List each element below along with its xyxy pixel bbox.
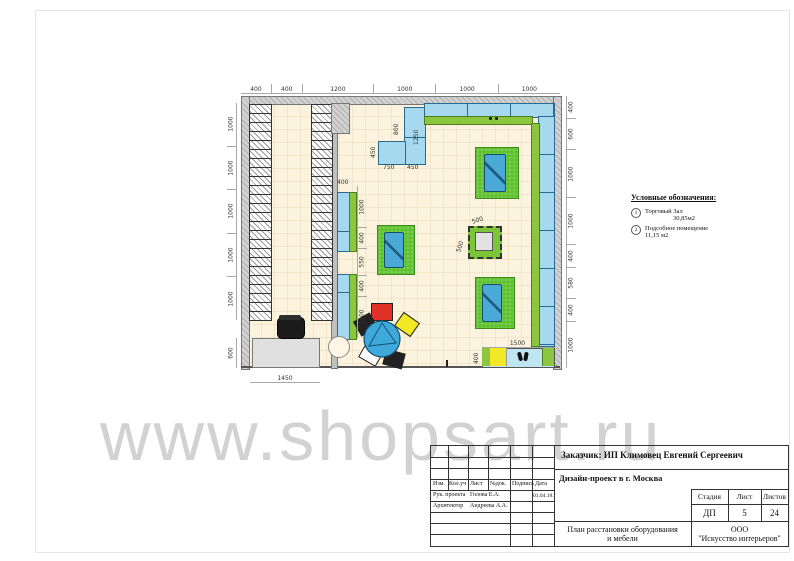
legend-num-1: 1 (631, 208, 641, 218)
dim-chain-partition: 10004005504001000 (357, 186, 367, 338)
partition-shelf-strip (349, 274, 357, 340)
wall-display-right (538, 116, 555, 347)
dim-chain-right: 400600100010004005804001000 (566, 96, 576, 368)
wall-pier (331, 103, 350, 134)
legend-item-sales-hall: 1 Торговый Зал 30,85м2 (631, 208, 743, 222)
storage-rack-left (249, 104, 272, 321)
sheets-label: Листов (761, 489, 788, 504)
legend-num-2: 2 (631, 225, 641, 235)
legend: Условные обозначения: 1 Торговый Зал 30,… (631, 193, 743, 242)
dim-cash-450-side: 450 (371, 147, 377, 158)
round-table (362, 319, 402, 359)
dim-cash-750: 750 (383, 165, 394, 171)
entrance-mark (446, 360, 448, 367)
office-chair (277, 317, 305, 339)
legend-label: Подсобное помещение 11,15 м2 (645, 225, 723, 239)
col-ndok: №док. (490, 481, 506, 487)
dim-left-bottom: 600 (227, 338, 237, 368)
col-data: Дата (535, 481, 547, 487)
backroom-counter (252, 338, 320, 368)
dim-partition-top: 400 (337, 180, 348, 186)
staff-role: Рук. проекта (433, 492, 465, 498)
legend-item-back-room: 2 Подсобное помещение 11,15 м2 (631, 225, 743, 239)
drawing-title: План расстановки оборудования и мебели (554, 521, 691, 546)
col-list: Лист (470, 481, 483, 487)
island-table-top (384, 232, 404, 268)
shoe-bench-seat (490, 348, 507, 366)
hook-dot (495, 117, 498, 120)
legend-label: Торговый Зал 30,85м2 (645, 208, 723, 222)
sheet-value: 5 (728, 504, 761, 521)
stage-label: Стадия (691, 489, 728, 504)
client-line: Заказчик: ИП Климовец Евгений Сергеевич (561, 450, 743, 460)
round-rack (328, 336, 350, 358)
staff-date: 01.04.18. (533, 493, 554, 499)
dim-cash-450: 450 (407, 165, 418, 171)
shelf-strip-right (531, 123, 540, 347)
col-podpis: Подпись (512, 481, 534, 487)
hook-dot (489, 117, 492, 120)
legend-title: Условные обозначения: (631, 193, 743, 202)
shelf-strip-top (424, 116, 533, 125)
dim-bench-width: 1500 (482, 338, 553, 348)
storage-rack-partition (311, 104, 333, 321)
building-column (475, 232, 493, 251)
sheet-label: Лист (728, 489, 761, 504)
dim-chain-top: 4004001200100010001000 (241, 84, 560, 94)
shoe-bench-end (542, 348, 554, 366)
staff-name: Андреева А.А. (470, 503, 508, 509)
island-table-top (484, 154, 506, 192)
dim-chain-left: 10001000100010001000 (227, 103, 237, 320)
stage-value: ДП (691, 504, 728, 521)
company-cell: ООО "Искусство интерьеров" (691, 521, 788, 546)
island-table-top (482, 284, 502, 322)
dim-cash-800: 800 (394, 124, 400, 135)
col-koluch: Кол.уч (449, 481, 466, 487)
title-block: Изм. Кол.уч Лист №док. Подпись Дата Рук.… (430, 445, 789, 547)
partition-shelf-strip (349, 192, 357, 252)
staff-role: Архитектор (433, 503, 463, 509)
dim-cash-1250: 1250 (414, 130, 420, 145)
col-izm: Изм. (433, 481, 445, 487)
sheets-value: 24 (761, 504, 788, 521)
cash-desk-horizontal (378, 141, 406, 165)
project-line: Дизайн-проект в г. Москва (559, 473, 662, 483)
dim-bench-depth: 400 (474, 353, 480, 364)
dim-counter: 1450 (250, 373, 320, 383)
staff-name: Голова Е.А. (470, 492, 500, 498)
office-chair-back (279, 315, 301, 320)
